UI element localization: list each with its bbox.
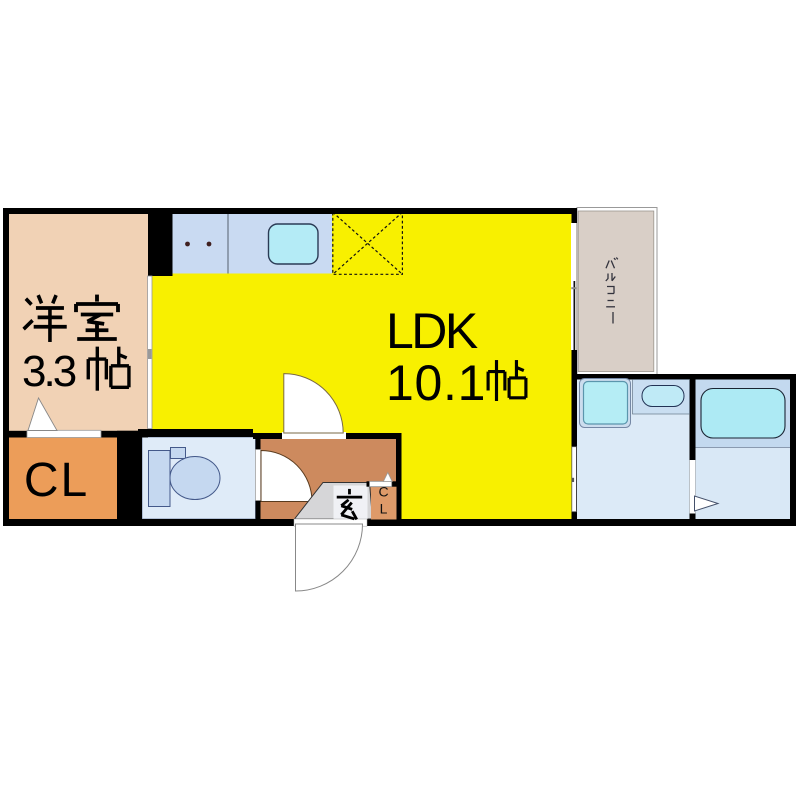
svg-text:L: L (380, 501, 388, 517)
svg-text:10.1: 10.1 (386, 355, 486, 411)
svg-text:C: C (378, 484, 388, 500)
svg-text:LDK: LDK (386, 303, 478, 359)
svg-text:CL: CL (24, 454, 89, 507)
svg-text:3.3: 3.3 (22, 347, 76, 396)
